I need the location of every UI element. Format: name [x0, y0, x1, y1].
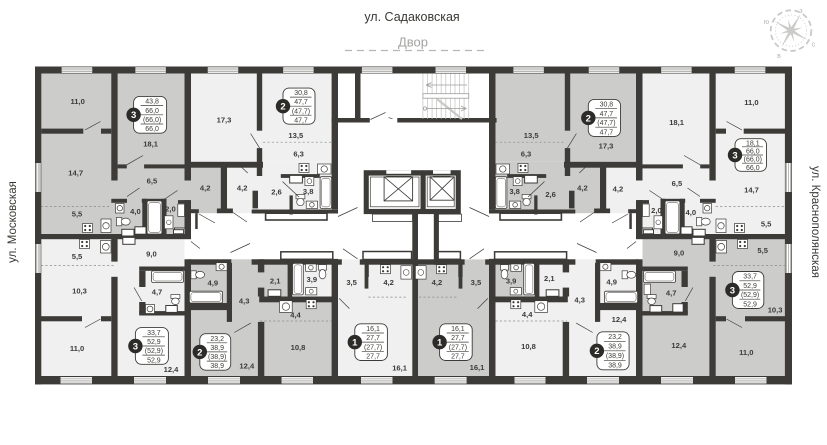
- svg-text:2: 2: [197, 347, 202, 358]
- svg-text:6,5: 6,5: [147, 177, 158, 186]
- svg-text:27,7: 27,7: [366, 335, 380, 342]
- svg-text:5,5: 5,5: [72, 210, 83, 219]
- svg-text:12,4: 12,4: [671, 341, 687, 350]
- svg-text:66,0: 66,0: [145, 108, 159, 115]
- svg-text:4,7: 4,7: [666, 289, 677, 298]
- svg-text:(52,9): (52,9): [145, 348, 163, 355]
- svg-text:18,1: 18,1: [669, 118, 685, 127]
- svg-text:(38,9): (38,9): [208, 354, 226, 361]
- svg-text:18,1: 18,1: [746, 140, 760, 147]
- svg-text:38,9: 38,9: [608, 344, 622, 351]
- svg-text:с: с: [812, 42, 816, 49]
- svg-text:6,5: 6,5: [672, 179, 683, 188]
- svg-text:4,2: 4,2: [577, 183, 588, 192]
- svg-text:2,0: 2,0: [651, 206, 662, 215]
- svg-text:4,0: 4,0: [686, 208, 697, 217]
- svg-text:(66,0): (66,0): [744, 157, 762, 164]
- svg-text:12,4: 12,4: [612, 315, 628, 324]
- svg-text:13,5: 13,5: [288, 131, 304, 140]
- svg-text:47,7: 47,7: [600, 111, 614, 118]
- svg-text:10,8: 10,8: [291, 343, 306, 352]
- svg-text:3,5: 3,5: [346, 278, 357, 287]
- svg-text:з: з: [799, 8, 802, 15]
- svg-text:23,2: 23,2: [210, 336, 224, 343]
- svg-text:11,0: 11,0: [744, 98, 758, 107]
- svg-text:3: 3: [133, 341, 138, 352]
- svg-text:66,0: 66,0: [145, 126, 159, 133]
- svg-text:2,6: 2,6: [545, 190, 556, 199]
- svg-text:30,8: 30,8: [294, 90, 308, 97]
- svg-text:17,3: 17,3: [217, 116, 232, 125]
- svg-text:16,1: 16,1: [366, 326, 380, 333]
- svg-text:(52,9): (52,9): [741, 292, 759, 299]
- svg-text:11,0: 11,0: [70, 344, 84, 353]
- svg-text:4,4: 4,4: [522, 310, 533, 319]
- svg-text:5,5: 5,5: [761, 219, 772, 228]
- svg-text:4,3: 4,3: [239, 297, 250, 306]
- svg-text:(27,7): (27,7): [364, 344, 382, 351]
- svg-text:(66,0): (66,0): [143, 117, 161, 124]
- svg-text:33,7: 33,7: [147, 330, 161, 337]
- svg-text:38,9: 38,9: [608, 363, 622, 370]
- svg-text:38,9: 38,9: [210, 363, 224, 370]
- svg-text:ю: ю: [764, 19, 769, 26]
- svg-text:4,2: 4,2: [613, 184, 624, 193]
- svg-text:4,3: 4,3: [574, 296, 585, 305]
- svg-text:4,9: 4,9: [208, 278, 219, 287]
- svg-text:3,9: 3,9: [506, 276, 517, 285]
- svg-text:27,7: 27,7: [366, 354, 380, 361]
- svg-text:17,3: 17,3: [599, 142, 614, 151]
- svg-text:12,4: 12,4: [164, 365, 180, 374]
- svg-text:3: 3: [730, 285, 735, 296]
- svg-text:23,2: 23,2: [608, 334, 622, 341]
- svg-text:2,0: 2,0: [165, 205, 176, 214]
- svg-text:9,0: 9,0: [146, 249, 157, 258]
- svg-text:4,0: 4,0: [130, 207, 141, 216]
- svg-text:3,8: 3,8: [303, 187, 314, 196]
- svg-text:10,3: 10,3: [768, 305, 783, 314]
- svg-text:27,7: 27,7: [451, 335, 465, 342]
- svg-text:14,7: 14,7: [68, 169, 83, 178]
- svg-text:10,8: 10,8: [521, 342, 536, 351]
- svg-text:10,3: 10,3: [72, 287, 87, 296]
- svg-text:16,1: 16,1: [470, 363, 486, 372]
- svg-text:14,7: 14,7: [744, 186, 759, 195]
- svg-text:(47,7): (47,7): [597, 120, 615, 127]
- svg-text:11,0: 11,0: [739, 348, 753, 357]
- svg-text:16,1: 16,1: [451, 326, 465, 333]
- svg-text:ул. Московская: ул. Московская: [7, 181, 19, 263]
- svg-text:66,0: 66,0: [746, 165, 760, 172]
- svg-text:2,1: 2,1: [270, 276, 281, 285]
- svg-text:3: 3: [131, 110, 136, 121]
- svg-text:6,3: 6,3: [521, 150, 532, 159]
- svg-text:(47,7): (47,7): [292, 108, 310, 115]
- svg-text:1: 1: [437, 338, 443, 349]
- svg-text:2,6: 2,6: [271, 188, 282, 197]
- svg-text:11,0: 11,0: [71, 97, 85, 106]
- svg-text:30,8: 30,8: [600, 102, 614, 109]
- svg-text:(38,9): (38,9): [606, 353, 624, 360]
- svg-text:6,3: 6,3: [293, 150, 304, 159]
- svg-text:4,4: 4,4: [290, 311, 301, 320]
- svg-text:ул. Садаковская: ул. Садаковская: [364, 10, 459, 24]
- svg-text:5,5: 5,5: [72, 252, 83, 261]
- svg-text:2: 2: [594, 346, 599, 357]
- svg-text:ул. Краснополянская: ул. Краснополянская: [809, 166, 821, 278]
- svg-text:47,7: 47,7: [294, 117, 308, 124]
- svg-text:9,0: 9,0: [674, 249, 685, 258]
- svg-text:3,8: 3,8: [509, 187, 520, 196]
- svg-text:27,7: 27,7: [451, 354, 465, 361]
- svg-text:66,0: 66,0: [746, 149, 760, 156]
- svg-text:Двор: Двор: [398, 35, 428, 50]
- svg-text:3,5: 3,5: [471, 278, 482, 287]
- svg-text:4,9: 4,9: [606, 278, 617, 287]
- svg-text:3: 3: [732, 150, 737, 161]
- svg-text:52,9: 52,9: [147, 339, 161, 346]
- svg-text:(27,7): (27,7): [449, 344, 467, 351]
- svg-text:3,9: 3,9: [307, 275, 318, 284]
- svg-text:52,9: 52,9: [743, 283, 757, 290]
- svg-text:2: 2: [280, 102, 285, 113]
- svg-text:4,7: 4,7: [152, 288, 163, 297]
- svg-text:в: в: [777, 53, 781, 60]
- svg-text:2: 2: [586, 113, 591, 124]
- svg-text:2,1: 2,1: [544, 274, 555, 283]
- svg-text:47,7: 47,7: [294, 99, 308, 106]
- svg-text:1: 1: [352, 338, 358, 349]
- svg-text:4,2: 4,2: [200, 183, 211, 192]
- svg-text:4,2: 4,2: [383, 278, 394, 287]
- svg-text:18,1: 18,1: [143, 140, 159, 149]
- svg-text:13,5: 13,5: [524, 131, 540, 140]
- svg-text:43,8: 43,8: [145, 99, 159, 106]
- svg-text:52,9: 52,9: [743, 302, 757, 309]
- svg-text:4,2: 4,2: [237, 183, 248, 192]
- svg-text:4,2: 4,2: [432, 278, 443, 287]
- svg-text:16,1: 16,1: [392, 363, 408, 372]
- svg-text:33,7: 33,7: [743, 274, 757, 281]
- svg-text:52,9: 52,9: [147, 357, 161, 364]
- svg-text:5,5: 5,5: [757, 246, 768, 255]
- svg-text:12,4: 12,4: [239, 362, 255, 371]
- svg-text:38,9: 38,9: [210, 345, 224, 352]
- svg-text:47,7: 47,7: [600, 129, 614, 136]
